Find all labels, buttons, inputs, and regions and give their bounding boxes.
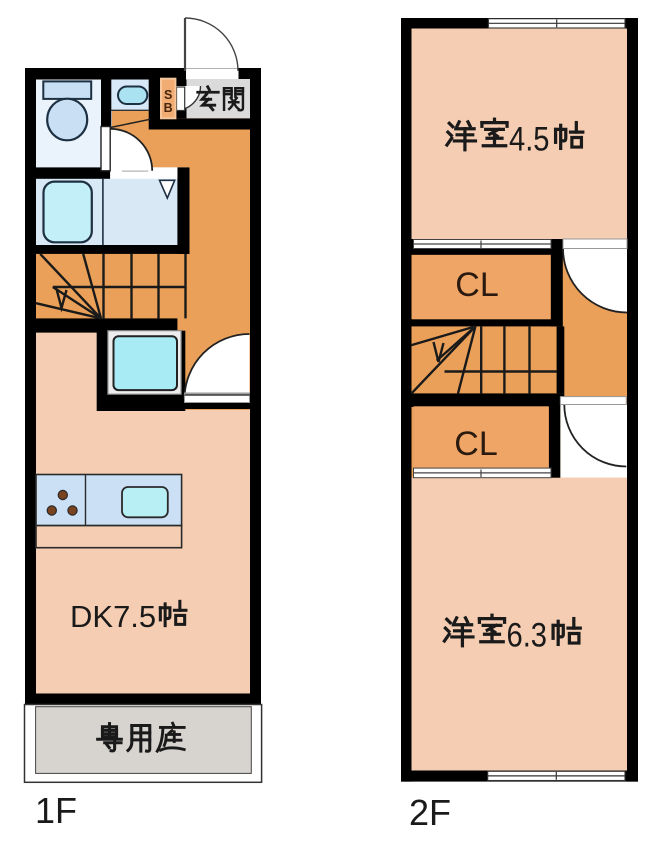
svg-text:1F: 1F (35, 790, 77, 831)
svg-text:6.3: 6.3 (507, 617, 548, 655)
svg-text:2F: 2F (409, 792, 451, 833)
svg-text:CL: CL (454, 425, 497, 463)
svg-text:B: B (164, 101, 173, 115)
svg-text:DK7.5: DK7.5 (70, 599, 156, 634)
svg-text:S: S (164, 88, 172, 102)
svg-text:CL: CL (455, 266, 498, 304)
svg-text:4.5: 4.5 (509, 121, 550, 159)
